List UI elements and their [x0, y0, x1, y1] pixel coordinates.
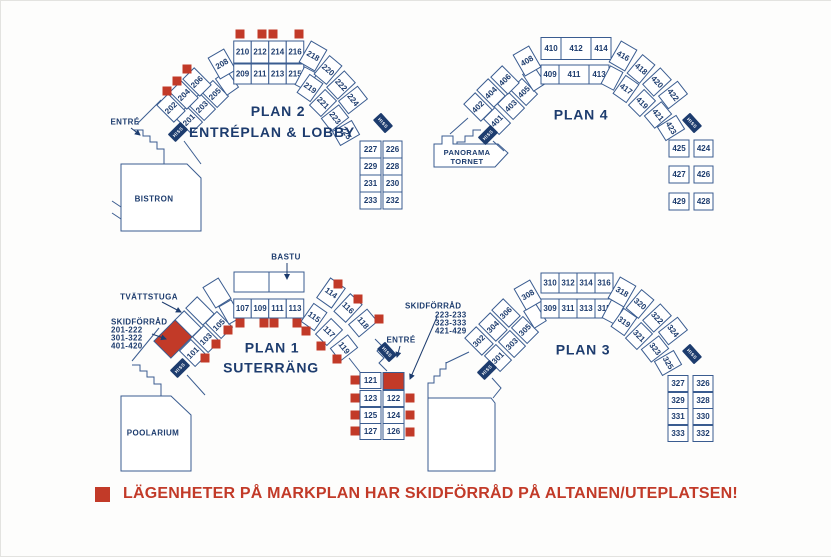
room-313: 313 — [577, 299, 595, 318]
room-122: 122 — [383, 391, 404, 407]
room-424: 424 — [694, 140, 713, 157]
skidforrad-marker — [406, 411, 415, 420]
skidforrad-marker — [183, 65, 192, 74]
room-327: 327 — [668, 376, 688, 392]
room-409: 409 — [541, 65, 559, 84]
room-number: 426 — [697, 170, 711, 179]
plan-1-outline-path — [132, 365, 161, 396]
room-number: 211 — [254, 70, 267, 79]
room-212: 212 — [251, 41, 269, 63]
skidforrad-marker — [293, 319, 302, 328]
room-316: 316 — [595, 273, 613, 293]
room-number: 316 — [597, 279, 611, 288]
room-227: 227 — [360, 141, 381, 158]
room-cell — [234, 272, 269, 292]
room-228: 228 — [383, 158, 402, 175]
plan-3-outline-path — [492, 378, 501, 398]
skidforrad-marker — [354, 295, 363, 304]
room-109: 109 — [251, 299, 269, 318]
plan-2-outline-path — [137, 100, 161, 124]
plan-2-group: BISTRON201203205202204206208209211213215… — [110, 30, 402, 232]
room-333: 333 — [668, 426, 688, 442]
skidforrad-marker — [334, 280, 343, 289]
plan-2-outline-path — [112, 213, 121, 219]
plan-2-outline-path — [134, 130, 164, 164]
skidforrad-left-label: 401-420 — [111, 342, 143, 351]
room-427: 427 — [669, 166, 689, 183]
plan-3-outline-path — [428, 362, 446, 398]
room-number: 233 — [364, 196, 378, 205]
building-bistron: BISTRON — [121, 164, 201, 231]
skidforrad-marker — [201, 354, 210, 363]
room-229: 229 — [360, 158, 381, 175]
room-213: 213 — [269, 64, 287, 84]
building-panorama-tornet-label: TORNET — [450, 157, 483, 166]
plan-1-outline-path — [349, 358, 360, 372]
room-309: 309 — [541, 299, 559, 318]
skidforrad-marker — [236, 30, 245, 39]
skidforrad-marker — [406, 394, 415, 403]
plan-3-group: 3013033053023043063083093113133153103123… — [428, 273, 713, 471]
room-number: 309 — [543, 304, 557, 313]
plan-2-outline-path — [184, 141, 201, 164]
building-panorama-tornet: PANORAMATORNET — [434, 136, 508, 167]
room-328: 328 — [693, 393, 713, 409]
skidforrad-marker — [351, 376, 360, 385]
room-number: 230 — [386, 179, 400, 188]
room-number: 429 — [672, 197, 686, 206]
skidforrad-marker — [270, 319, 279, 328]
skidforrad-right-ranges: 421-429 — [435, 327, 467, 336]
room-412: 412 — [561, 38, 591, 60]
skidforrad-marker — [163, 87, 172, 96]
hiss-elevator: HISS — [682, 113, 702, 134]
skidforrad-marker — [302, 327, 311, 336]
plan-4-group: PANORAMATORNET40140340540240440640840941… — [434, 38, 713, 211]
hiss-elevator: HISS — [373, 113, 393, 134]
room-number: 124 — [387, 411, 401, 420]
room-number: 109 — [253, 304, 267, 313]
room-326: 326 — [693, 376, 713, 392]
room-number: 330 — [696, 412, 710, 421]
room-414: 414 — [591, 38, 611, 60]
room-314: 314 — [577, 273, 595, 293]
room-126: 126 — [383, 424, 404, 440]
entre-label: ENTRÉ — [110, 118, 139, 127]
annotation-arrow — [162, 302, 181, 312]
legend-square-icon — [95, 487, 110, 502]
hiss-elevator: HISS — [377, 342, 397, 363]
room-127: 127 — [360, 424, 381, 440]
room-number: 314 — [579, 279, 593, 288]
skidforrad-marker — [375, 315, 384, 324]
skidforrad-marker — [173, 77, 182, 86]
room-number: 226 — [386, 145, 400, 154]
room-number: 210 — [236, 48, 250, 57]
skidforrad-marker — [236, 319, 245, 328]
room-209: 209 — [234, 64, 252, 84]
room-310: 310 — [541, 273, 559, 293]
room-number: 333 — [671, 429, 685, 438]
room-number: 332 — [696, 429, 710, 438]
room-214: 214 — [269, 41, 287, 63]
room-number: 107 — [236, 304, 250, 313]
skidforrad-right-label: SKIDFÖRRÅD — [405, 302, 461, 311]
room-124: 124 — [383, 408, 404, 424]
hiss-elevator: HISS — [682, 344, 702, 365]
skidforrad-marker — [406, 428, 415, 437]
room-number: 409 — [543, 70, 557, 79]
room-107: 107 — [234, 299, 252, 318]
room-number: 214 — [271, 48, 285, 57]
skidforrad-room — [383, 373, 404, 390]
room-number: 127 — [364, 427, 378, 436]
plan-1-title: PLAN 1 — [245, 340, 300, 356]
room-number: 329 — [671, 396, 685, 405]
floorplan-map: BISTRON201203205202204206208209211213215… — [1, 1, 831, 556]
plan-2-title: PLAN 2 — [251, 103, 306, 119]
skidforrad-marker — [212, 340, 221, 349]
plan-1-title: SUTERRÄNG — [223, 360, 319, 376]
annotation-arrow — [410, 317, 437, 379]
plan-2-title: ENTRÉPLAN & LOBBY — [189, 124, 355, 140]
room-number: 327 — [671, 379, 685, 388]
room-number: 328 — [696, 396, 710, 405]
room-425: 425 — [669, 140, 689, 157]
room-number: 121 — [364, 376, 378, 385]
room-number: 125 — [364, 411, 378, 420]
room-113: 113 — [286, 299, 304, 318]
building-unlabeled — [428, 398, 495, 471]
room-426: 426 — [694, 166, 713, 183]
room-231: 231 — [360, 175, 381, 192]
room-number: 410 — [544, 44, 558, 53]
plan-1-group: POOLARIUM1011031051071091111131151171191… — [111, 253, 467, 472]
plan-1-outline-path — [187, 375, 205, 395]
room-111: 111 — [269, 299, 287, 318]
plan-4-title: PLAN 4 — [554, 107, 609, 123]
plan-3-outline-path — [446, 352, 469, 363]
room-428: 428 — [694, 193, 713, 210]
skidforrad-marker — [260, 319, 269, 328]
room-210: 210 — [234, 41, 252, 63]
annotation-arrow — [131, 128, 140, 135]
skidforrad-marker — [351, 411, 360, 420]
entre-label: ENTRÉ — [386, 336, 415, 345]
room-number: 232 — [386, 196, 400, 205]
room-number: 424 — [697, 144, 711, 153]
room-329: 329 — [668, 393, 688, 409]
room-332: 332 — [693, 426, 713, 442]
room-number: 229 — [364, 162, 378, 171]
building-panorama-tornet-label: PANORAMA — [444, 148, 491, 157]
room-number: 311 — [562, 304, 575, 313]
plan-3-title: PLAN 3 — [556, 342, 611, 358]
room-311: 311 — [559, 299, 577, 318]
room-121: 121 — [360, 373, 381, 389]
room-number: 209 — [236, 70, 250, 79]
plan-2-outline-path — [112, 201, 121, 207]
room-312: 312 — [559, 273, 577, 293]
room-233: 233 — [360, 192, 381, 209]
room-number: 216 — [288, 48, 302, 57]
room-number: 310 — [543, 279, 557, 288]
room-330: 330 — [693, 409, 713, 425]
legend-text: LÄGENHETER PÅ MARKPLAN HAR SKIDFÖRRÅD PÅ… — [123, 485, 738, 503]
room-331: 331 — [668, 409, 688, 425]
skidforrad-marker — [351, 394, 360, 403]
room-208: 208 — [208, 49, 236, 79]
building-unlabeled-outline — [428, 398, 495, 471]
skidforrad-marker — [351, 427, 360, 436]
room-number: 231 — [364, 179, 378, 188]
room-411: 411 — [559, 65, 589, 84]
room-cell-rect — [234, 272, 269, 292]
bastu-label: BASTU — [271, 253, 301, 262]
room-number: 428 — [697, 197, 711, 206]
skidforrad-marker — [295, 30, 304, 39]
room-number: 312 — [561, 279, 575, 288]
plan-4-outline-path — [450, 118, 468, 134]
room-number: 123 — [364, 394, 378, 403]
skidforrad-marker — [333, 355, 342, 364]
skidforrad-marker — [258, 30, 267, 39]
skidforrad-marker — [224, 326, 233, 335]
room-230: 230 — [383, 175, 402, 192]
building-bistron-label: BISTRON — [135, 195, 174, 204]
building-poolarium-label: POOLARIUM — [127, 429, 180, 438]
room-number: 425 — [672, 144, 686, 153]
room-number: 313 — [579, 304, 593, 313]
floorplan-page: BISTRON201203205202204206208209211213215… — [0, 0, 831, 557]
room-number: 411 — [568, 70, 581, 79]
room-number: 126 — [387, 427, 401, 436]
room-number: 212 — [253, 48, 267, 57]
room-number: 113 — [289, 304, 302, 313]
building-poolarium: POOLARIUM — [121, 396, 191, 471]
room-number: 122 — [387, 394, 401, 403]
room-number: 427 — [672, 170, 686, 179]
room-number: 228 — [386, 162, 400, 171]
skidforrad-marker — [317, 342, 326, 351]
annotation-arrow — [397, 346, 400, 357]
tvattstuga-label: TVÄTTSTUGA — [120, 293, 178, 302]
room-number: 412 — [569, 44, 583, 53]
plan-4-outline-path — [457, 130, 481, 144]
room-number: 111 — [271, 304, 284, 313]
room-number: 326 — [696, 379, 710, 388]
room-number: 331 — [671, 412, 685, 421]
room-429: 429 — [669, 193, 689, 210]
room-123: 123 — [360, 391, 381, 407]
room-number: 414 — [594, 44, 608, 53]
legend: LÄGENHETER PÅ MARKPLAN HAR SKIDFÖRRÅD PÅ… — [95, 485, 738, 503]
room-226: 226 — [383, 141, 402, 158]
skidforrad-marker — [269, 30, 278, 39]
room-308: 308 — [514, 280, 542, 310]
room-410: 410 — [541, 38, 561, 60]
skidforrad-room-rect — [383, 373, 404, 390]
room-125: 125 — [360, 408, 381, 424]
room-number: 213 — [271, 70, 285, 79]
room-232: 232 — [383, 192, 402, 209]
room-number: 227 — [364, 145, 378, 154]
room-211: 211 — [251, 64, 269, 84]
